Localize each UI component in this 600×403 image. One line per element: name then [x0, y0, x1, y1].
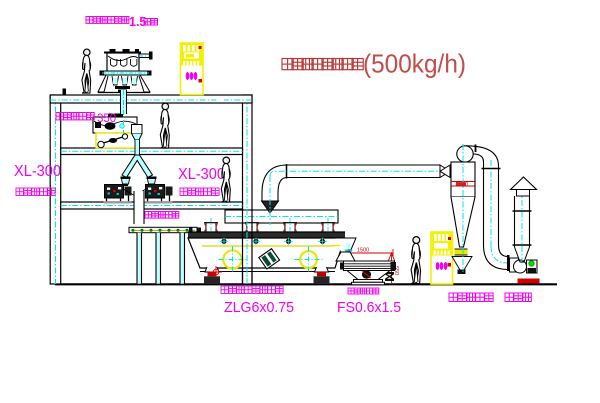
svg-text:XL-300: XL-300 — [14, 163, 61, 180]
svg-text:ZLG6x0.75: ZLG6x0.75 — [224, 299, 294, 316]
svg-text:350: 350 — [97, 113, 116, 125]
svg-text:FS0.6x1.5: FS0.6x1.5 — [337, 299, 401, 316]
svg-text:1500: 1500 — [357, 248, 369, 254]
svg-text:(500kg/h): (500kg/h) — [363, 49, 466, 79]
svg-text:XL-300: XL-300 — [178, 166, 225, 183]
